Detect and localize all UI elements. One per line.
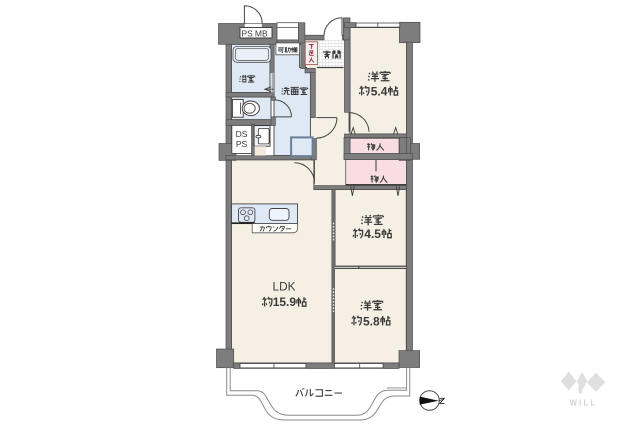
svg-text:MB: MB: [255, 28, 268, 38]
svg-text:DS: DS: [236, 129, 248, 139]
svg-text:PS: PS: [236, 139, 248, 149]
svg-text:15.9: 15.9: [273, 295, 297, 309]
svg-text:4.5: 4.5: [364, 227, 381, 241]
svg-text:LDK: LDK: [273, 279, 296, 293]
svg-text:WILL: WILL: [570, 398, 598, 407]
svg-text:5.8: 5.8: [363, 314, 380, 328]
svg-text:5.4: 5.4: [371, 85, 388, 99]
svg-text:PS: PS: [242, 28, 254, 38]
